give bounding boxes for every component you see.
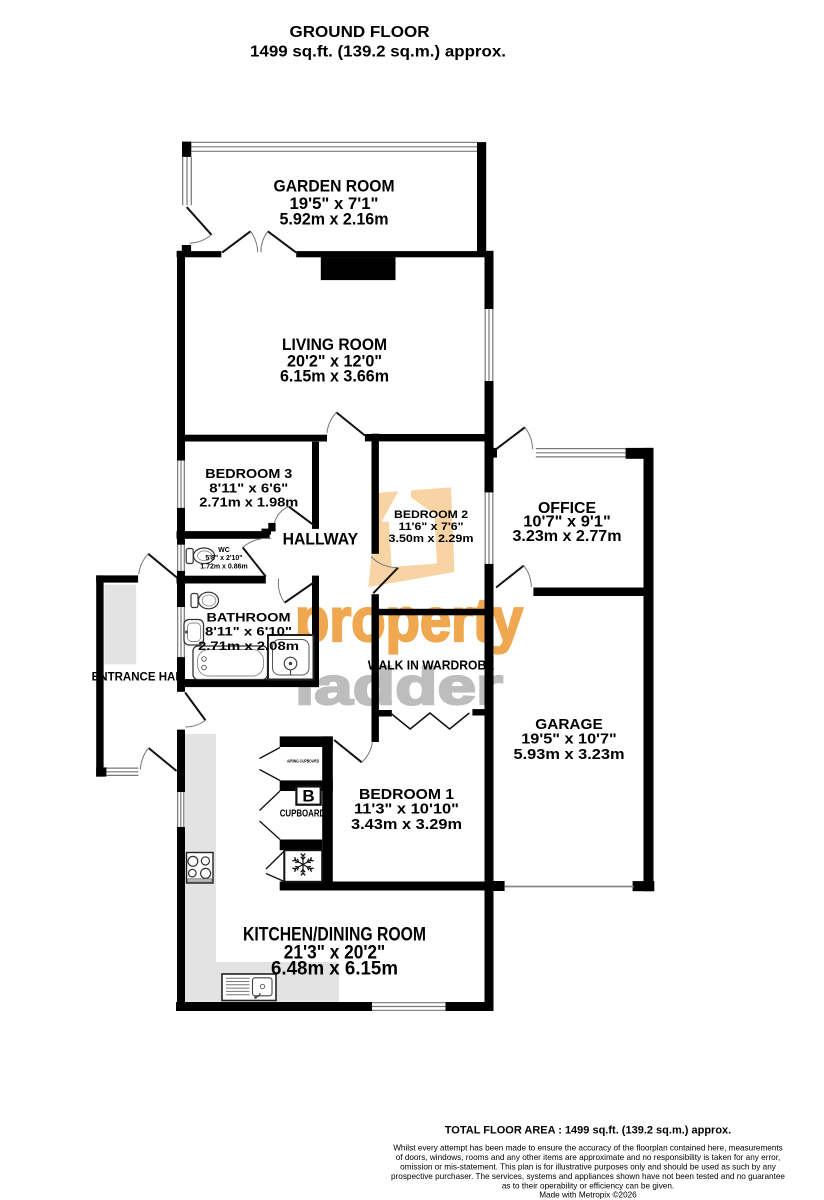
svg-text:5.93m x 3.23m: 5.93m x 3.23m	[514, 746, 625, 763]
svg-text:1.72m x 0.86m: 1.72m x 0.86m	[200, 564, 247, 571]
svg-text:BATHROOM: BATHROOM	[207, 611, 291, 625]
svg-text:AIRING CUPBOARD: AIRING CUPBOARD	[287, 759, 320, 764]
svg-text:Whilst every attempt has been: Whilst every attempt has been made to en…	[393, 1144, 783, 1153]
svg-text:WALK IN WARDROBE: WALK IN WARDROBE	[368, 658, 495, 673]
svg-text:of doors, windows, rooms and a: of doors, windows, rooms and any other i…	[396, 1153, 781, 1162]
svg-text:TOTAL FLOOR AREA : 1499 sq.ft.: TOTAL FLOOR AREA : 1499 sq.ft. (139.2 sq…	[445, 1125, 731, 1137]
svg-text:as to their operability or eff: as to their operability or efficiency ca…	[502, 1182, 674, 1191]
svg-text:CUPBOARD: CUPBOARD	[280, 808, 326, 820]
svg-text:19'5" x 10'7": 19'5" x 10'7"	[521, 731, 617, 748]
svg-text:8'11" x 6'10": 8'11" x 6'10"	[205, 625, 292, 639]
svg-text:5.92m x 2.16m: 5.92m x 2.16m	[280, 210, 389, 229]
svg-text:11'6" x 7'6": 11'6" x 7'6"	[399, 521, 464, 533]
svg-text:3.23m x 2.77m: 3.23m x 2.77m	[513, 528, 622, 545]
svg-text:omission or mis-statement. Thi: omission or mis-statement. This plan is …	[400, 1163, 777, 1172]
svg-text:ENTRANCE HALL: ENTRANCE HALL	[92, 672, 190, 684]
svg-text:3.43m x 3.29m: 3.43m x 3.29m	[351, 816, 462, 833]
svg-text:GARDEN ROOM: GARDEN ROOM	[274, 177, 395, 196]
svg-text:5'8" x 2'10": 5'8" x 2'10"	[205, 555, 242, 562]
svg-text:B: B	[302, 787, 314, 806]
svg-text:GROUND FLOOR: GROUND FLOOR	[290, 24, 430, 41]
svg-text:BEDROOM 2: BEDROOM 2	[394, 509, 468, 521]
svg-text:BEDROOM 3: BEDROOM 3	[205, 466, 292, 481]
svg-text:6.15m x 3.66m: 6.15m x 3.66m	[280, 367, 389, 386]
svg-text:HALLWAY: HALLWAY	[283, 530, 359, 548]
svg-text:1499 sq.ft. (139.2 sq.m.) appr: 1499 sq.ft. (139.2 sq.m.) approx.	[250, 43, 506, 60]
svg-text:prospective purchaser. The ser: prospective purchaser. The services, sys…	[391, 1172, 785, 1181]
svg-text:2.71m x 1.98m: 2.71m x 1.98m	[199, 494, 298, 509]
svg-text:2.71m x 2.08m: 2.71m x 2.08m	[198, 639, 299, 653]
svg-text:11'3" x 10'10": 11'3" x 10'10"	[354, 801, 459, 818]
svg-text:Made with Metropix ©2026: Made with Metropix ©2026	[539, 1191, 637, 1200]
svg-text:WC: WC	[218, 547, 230, 554]
svg-text:3.50m x 2.29m: 3.50m x 2.29m	[389, 533, 474, 545]
svg-text:6.48m x 6.15m: 6.48m x 6.15m	[271, 958, 398, 979]
